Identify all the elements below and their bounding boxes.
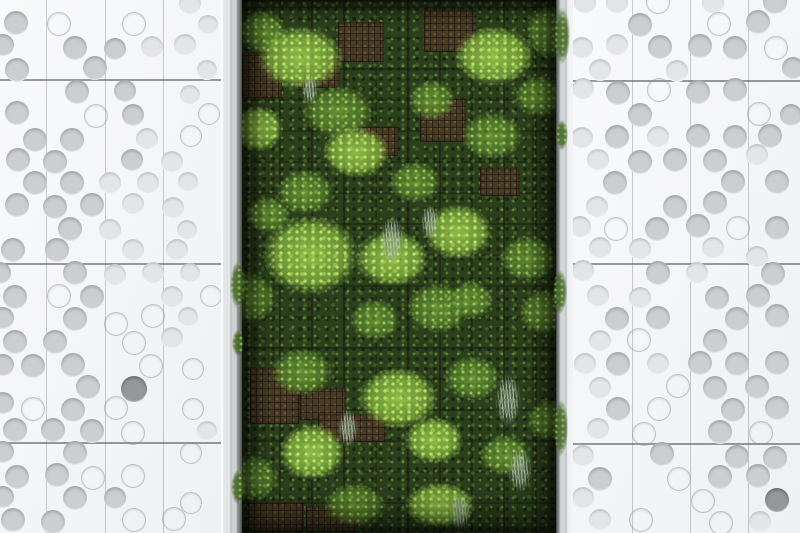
perforation-dot [41,418,65,442]
perforation-dot [746,144,768,166]
perforation-dot [746,10,770,34]
perforation-dot [104,264,126,286]
perforation-dot [139,354,163,378]
perforation-dot [0,262,11,284]
perforation-dot [0,34,14,56]
perforation-dot [166,239,188,261]
perforation-dot [708,420,732,444]
perforation-dot [0,486,14,508]
silver-grass-tuft [449,494,471,530]
perforation-dot [99,219,121,241]
perforation-dot [99,172,121,194]
perforation-dot [586,196,608,218]
perforation-dot [6,148,30,172]
perforation-dot [747,102,771,126]
perforation-dot [5,101,29,125]
perforation-dot [686,262,708,284]
perforation-dot [628,103,652,127]
perforation-dot [688,34,712,58]
perforation-dot [5,465,29,489]
perforation-dot [703,329,727,353]
perforation-dot [63,441,87,465]
perforation-dot [589,509,611,531]
plant-cluster [515,76,556,116]
perforation-dot [197,60,217,80]
perforation-dot [646,306,670,330]
plant-cluster [272,349,332,395]
perforation-dot [63,486,87,510]
perforation-dot [104,38,126,60]
perforation-dot [725,352,749,376]
perforated-panel-right [573,0,800,533]
perforation-dot [703,191,727,215]
perforation-dot [765,216,789,240]
plant-cluster [242,106,283,151]
perforation-dot [198,103,220,125]
silver-grass-tuft [302,75,318,105]
perforation-dot [725,307,749,331]
perforation-dot [723,125,747,149]
perforation-dot [628,13,652,37]
perforation-dot [136,128,158,150]
perforation-dot [573,37,593,59]
perforation-dot [47,12,71,36]
perforation-dot [606,352,630,376]
perforation-dot [605,125,629,149]
perforation-dot [765,351,789,375]
perforation-dot [43,330,67,354]
silver-grass-tuft [421,205,439,239]
perforation-dot [587,418,609,440]
perforation-dot [645,217,669,241]
perforation-dot [646,0,670,14]
plant-cluster [405,417,463,463]
plant-cluster [263,216,358,294]
perforation-dot [41,510,65,533]
perforation-dot [21,397,45,421]
perforation-dot [4,11,28,35]
perforation-dot [3,418,27,442]
perforation-dot [765,396,789,420]
perforation-dot [180,85,200,105]
perforation-dot [180,125,202,147]
perforation-dot [142,262,164,284]
perforation-dot [647,126,669,148]
perforation-dot [60,171,84,195]
perforation-dot [723,36,747,60]
plant-cluster [390,162,440,202]
perforation-dot [667,467,691,491]
perforation-dot [121,376,147,402]
perforation-dot [627,328,651,352]
perforation-dot [122,239,144,261]
perforation-dot [628,150,652,174]
perforation-dot [121,149,143,171]
perforation-dot [45,463,69,487]
perforation-dot [646,261,670,285]
plant-cluster [448,281,493,319]
plant-cluster [242,455,278,501]
perforation-dot [765,488,789,512]
perforation-dot [763,446,787,470]
perforation-dot [666,374,690,398]
perforation-dot [0,307,14,329]
vertical-garden-wall [242,0,556,533]
perforation-dot [702,237,724,259]
perforation-dot [23,128,47,152]
perforation-dot [3,330,27,354]
perforation-dot [765,304,789,328]
perforation-dot [177,220,197,240]
perforation-dot [174,34,196,56]
perforation-dot [122,12,146,36]
perforation-dot [1,238,25,262]
perforation-dot [587,285,609,307]
perforation-dot [114,80,136,102]
perforation-dot [180,263,200,283]
perforation-dot [629,287,651,309]
perforation-dot [763,0,787,14]
perforation-dot [121,464,145,488]
perforation-dot [161,327,183,349]
perforation-dot [198,15,218,35]
perforation-dot [573,78,594,100]
perforation-dot [746,284,770,308]
perforation-dot [122,193,144,215]
perforation-dot [663,148,687,172]
perforation-dot [63,261,87,285]
perforation-dot [178,307,198,327]
planting-tray-patch [480,168,520,196]
perforation-dot [606,0,628,14]
perforation-dot [686,214,710,238]
perforation-dot [707,12,731,36]
perforation-dot [745,375,769,399]
perforation-dot [573,445,594,467]
perforation-dot [647,78,671,102]
perforation-dot [589,377,611,399]
perforation-dot [178,172,198,192]
perforation-dot [686,80,710,104]
plant-cluster [258,27,343,89]
perforation-dot [122,104,144,126]
perforation-dot [60,128,84,152]
plant-cluster [455,27,533,85]
perforation-dot [1,508,25,532]
plant-cluster [350,300,400,340]
perforation-dot [80,419,104,443]
perforation-dot [197,421,217,441]
plant-cluster [324,484,386,526]
perforation-dot [179,0,201,15]
perforation-dot [765,170,789,194]
perforation-dot [81,466,105,490]
perforation-dot [703,149,727,173]
perforation-dot [0,354,14,376]
perforation-dot [632,422,656,446]
plant-cluster [242,273,276,323]
perforation-dot [648,35,672,59]
perforation-dot [574,0,596,14]
perforation-dot [161,151,183,173]
perforation-dot [65,80,89,104]
perforation-dot [663,195,687,219]
perforation-dot [691,489,715,513]
perforation-dot [76,375,100,399]
perforation-dot [573,127,593,149]
perforation-dot [162,507,186,531]
perforation-dot [61,398,85,422]
perforation-dot [161,286,183,308]
perforation-dot [3,285,27,309]
perforation-dot [666,60,688,82]
perforation-dot [629,508,653,532]
plant-cluster [445,356,500,400]
perforation-dot [686,124,710,148]
perforation-dot [709,511,733,533]
perforation-dot [63,307,87,331]
photo-green-wall-facade [0,0,800,533]
perforation-dot [647,397,671,421]
perforation-dot [721,398,745,422]
plant-cluster [520,290,556,334]
perforation-dot [708,465,732,489]
perforation-dot [588,467,612,491]
perforation-dot [573,260,594,282]
perforation-dot [603,171,627,195]
silver-grass-tuft [338,409,358,447]
perforation-dot [574,353,596,375]
perforation-dot [647,353,669,375]
perforation-dot [141,304,165,328]
perforation-dot [162,197,184,219]
perforation-dot [84,104,108,128]
silver-grass-tuft [495,374,521,426]
panel-seam-horizontal [0,79,221,81]
perforation-dot [45,238,69,262]
perforation-dot [573,487,594,509]
perforation-dot [688,351,712,375]
perforation-dot [589,330,611,352]
plant-cluster [528,400,556,440]
perforation-dot [137,172,159,194]
perforation-dot [80,285,104,309]
perforation-dot [43,150,67,174]
planting-tray-patch [248,502,304,532]
perforation-dot [629,238,651,260]
perforation-dot [726,216,750,240]
perforation-dot [780,104,800,126]
plant-cluster [280,424,344,480]
perforation-dot [104,312,128,336]
perforation-dot [80,193,104,217]
perforation-dot [782,57,800,79]
perforation-dot [61,353,85,377]
perforation-dot [43,195,67,219]
perforation-dot [200,285,221,307]
perforation-dot [605,307,629,331]
perforation-dot [23,171,47,195]
perforation-dot [182,358,204,380]
perforated-panel-left [0,0,221,533]
perforation-dot [749,421,773,445]
perforation-dot [121,421,145,445]
perforation-dot [723,78,747,102]
perforation-dot [703,376,727,400]
perforation-dot [122,331,146,355]
perforation-dot [746,464,770,488]
plant-cluster [323,127,389,177]
perforation-dot [604,217,628,241]
perforation-dot [705,286,729,310]
perforation-dot [749,511,771,533]
perforation-dot [180,442,202,464]
perforation-dot [725,445,749,469]
perforation-dot [606,34,628,56]
perforation-dot [0,392,14,414]
silver-grass-tuft [380,216,404,264]
perforation-dot [5,193,29,217]
perforation-dot [83,56,107,80]
perforation-dot [587,149,609,171]
perforation-dot [104,487,126,509]
perforation-dot [21,354,45,378]
perforation-dot [761,262,785,286]
perforation-dot [764,36,788,60]
perforation-dot [606,81,630,105]
perforation-dot [589,59,611,81]
perforation-dot [0,441,14,463]
plant-cluster [462,113,522,159]
perforation-dot [606,397,630,421]
perforation-dot [47,284,71,308]
perforation-dot [63,36,87,60]
planting-tray-patch [338,22,384,62]
silver-grass-tuft [508,448,532,492]
plant-cluster [501,236,556,281]
perforation-dot [58,217,82,241]
perforation-dot [650,442,674,466]
perforation-dot [182,398,204,420]
perforation-dot [104,396,128,420]
perforation-dot [721,170,745,194]
perforation-dot [573,216,591,238]
perforation-dot [589,237,611,259]
perforation-dot [5,58,29,82]
panel-seam-horizontal [573,80,800,82]
perforation-dot [122,508,146,532]
perforation-dot [141,36,163,58]
